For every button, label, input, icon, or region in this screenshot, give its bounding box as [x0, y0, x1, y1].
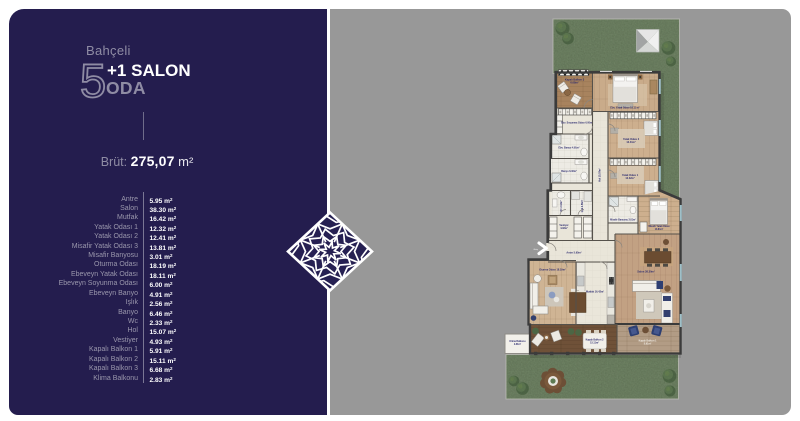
svg-text:15.11m²: 15.11m²: [590, 341, 599, 345]
svg-text:12.41m²: 12.41m²: [626, 140, 635, 144]
svg-text:Klima Balkonu: Klima Balkonu: [510, 341, 527, 343]
svg-text:Antre 5.95m²: Antre 5.95m²: [566, 251, 581, 255]
svg-text:Hol 15.07m²: Hol 15.07m²: [598, 168, 602, 182]
svg-text:5.91m²: 5.91m²: [644, 342, 652, 346]
svg-text:Misafir Yatak Odası: Misafir Yatak Odası: [648, 225, 669, 228]
svg-text:Ebv. Yatak Odası 18.11 m²: Ebv. Yatak Odası 18.11 m²: [610, 105, 639, 109]
svg-text:12.32m²: 12.32m²: [625, 176, 634, 180]
svg-text:Banyo 6.46m²: Banyo 6.46m²: [561, 169, 577, 173]
svg-text:Salon 38.30m²: Salon 38.30m²: [637, 270, 655, 274]
svg-text:Ebv. Banyo 4.91m²: Ebv. Banyo 4.91m²: [558, 146, 579, 150]
svg-text:Oturma Odası 18.19m²: Oturma Odası 18.19m²: [539, 268, 566, 272]
svg-text:Mutfak 16.42m²: Mutfak 16.42m²: [586, 290, 604, 294]
svg-text:4.93m²: 4.93m²: [560, 226, 568, 230]
svg-text:Ebv. Soyunma Odası 6.00m²: Ebv. Soyunma Odası 6.00m²: [561, 121, 593, 125]
svg-text:Giriş: Giriş: [534, 248, 539, 251]
svg-text:6.68m²: 6.68m²: [570, 81, 578, 85]
